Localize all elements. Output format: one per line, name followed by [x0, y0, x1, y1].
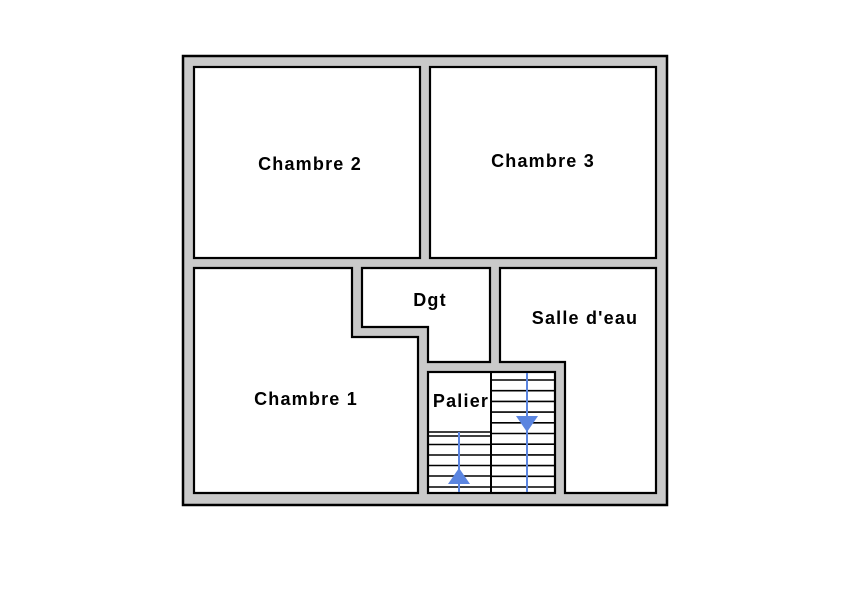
room-label-chambre-1: Chambre 1	[254, 389, 358, 409]
room-label-chambre-3: Chambre 3	[491, 151, 595, 171]
floor-plan: Chambre 2 Chambre 3 Chambre 1 Dgt Salle …	[0, 0, 868, 603]
room-label-salle-deau: Salle d'eau	[532, 308, 639, 328]
room-label-chambre-2: Chambre 2	[258, 154, 362, 174]
room-label-palier: Palier	[433, 391, 489, 411]
floor-plan-canvas: Chambre 2 Chambre 3 Chambre 1 Dgt Salle …	[0, 0, 868, 603]
room-label-dgt: Dgt	[413, 290, 447, 310]
